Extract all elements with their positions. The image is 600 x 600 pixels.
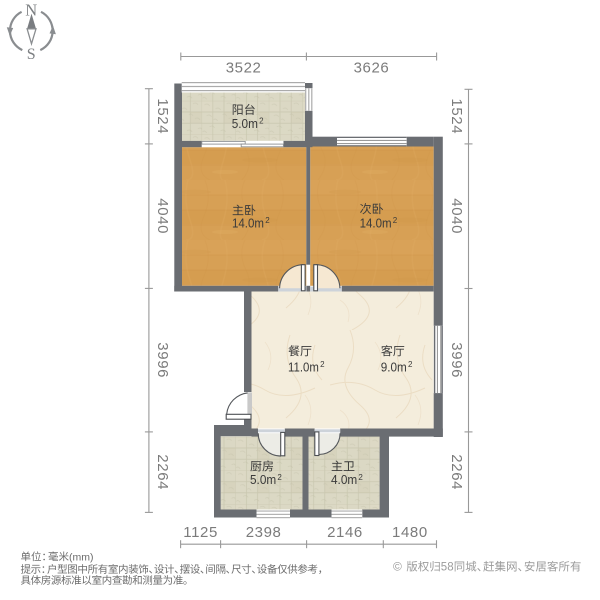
svg-text:2264: 2264 (448, 454, 465, 490)
svg-text:3996: 3996 (154, 342, 171, 378)
svg-text:2: 2 (320, 360, 325, 369)
svg-text:4.0m: 4.0m (331, 472, 357, 487)
svg-text:14.0m: 14.0m (232, 216, 264, 231)
svg-text:2: 2 (358, 473, 363, 482)
svg-text:5.0m: 5.0m (250, 472, 276, 487)
svg-text:2: 2 (265, 216, 270, 225)
svg-text:4040: 4040 (448, 198, 465, 234)
svg-text:5.0m: 5.0m (232, 116, 258, 131)
svg-text:14.0m: 14.0m (360, 216, 392, 231)
svg-text:1524: 1524 (154, 98, 171, 134)
svg-text:2: 2 (393, 216, 398, 225)
svg-text:1524: 1524 (448, 98, 465, 134)
svg-text:1480: 1480 (392, 524, 428, 541)
svg-text:2: 2 (408, 360, 413, 369)
svg-text:3522: 3522 (226, 60, 262, 77)
svg-text:9.0m: 9.0m (381, 359, 407, 374)
svg-text:4040: 4040 (154, 198, 171, 234)
svg-text:N: N (25, 1, 37, 20)
svg-text:3996: 3996 (448, 342, 465, 378)
svg-text:58: 58 (441, 562, 454, 574)
svg-text:3626: 3626 (354, 60, 390, 77)
svg-text:2264: 2264 (154, 454, 171, 490)
svg-text:1125: 1125 (183, 524, 218, 541)
svg-text:2398: 2398 (246, 524, 282, 541)
svg-text:©: © (393, 560, 402, 574)
svg-text:2: 2 (277, 473, 282, 482)
svg-text:11.0m: 11.0m (288, 359, 319, 374)
svg-text:2146: 2146 (327, 524, 363, 541)
svg-text:S: S (27, 46, 36, 63)
svg-text:2: 2 (259, 117, 264, 126)
svg-text:(mm): (mm) (69, 551, 94, 563)
